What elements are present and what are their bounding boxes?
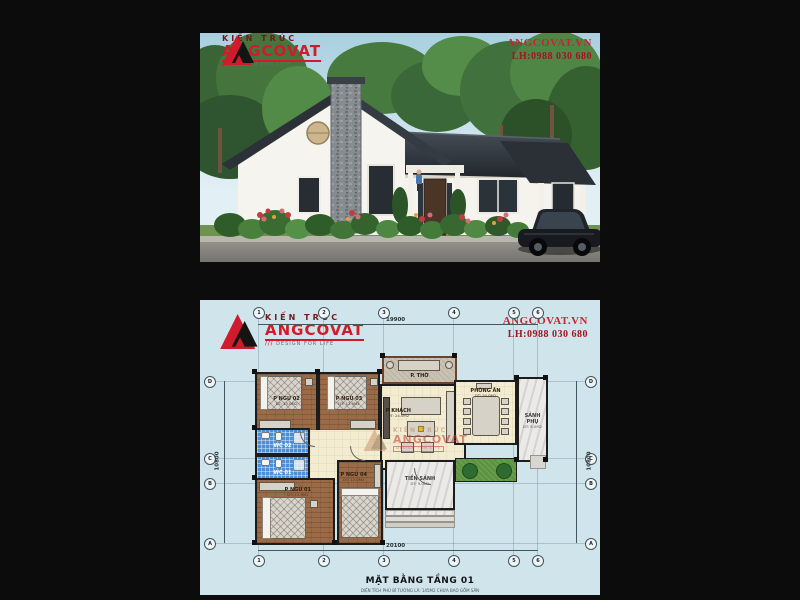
tree-icon [496,463,512,479]
room-area: DT: 12.5M2 [320,402,378,407]
chair-icon [463,408,471,415]
grid-bubble: A [204,538,216,550]
grid-bubble: 6 [532,307,544,319]
brand-triangle-icon [222,35,256,65]
chair-icon [501,428,509,435]
nightstand-icon [310,500,318,508]
wall-pier [543,375,548,380]
website-text: ANGCOVAT.VN [507,37,592,51]
wall-pier [514,457,519,462]
wall-pier [377,369,382,374]
wall-pier [543,457,548,462]
grid-bubble: 4 [448,307,460,319]
toilet-icon [275,432,282,441]
window [298,177,320,213]
brand-name: ANGCOVAT [265,323,364,338]
wall-pier [380,540,385,545]
contact-block: ANGCOVAT.VN LH:0988 030 680 [503,315,588,341]
sink-icon [261,432,270,439]
grid-bubble: 3 [378,555,390,567]
grid-bubble: D [585,376,597,388]
dim-line-bottom [258,550,538,551]
room-p-tho: P. THỜ [382,356,457,384]
room-area: DT: 13.5M2 [275,493,321,498]
contact-block: ANGCOVAT.VN LH:0988 030 680 [507,37,592,63]
plan-title: MẶT BẰNG TẦNG 01 [320,576,520,586]
wall-pier [252,369,257,374]
house-render-panel: KIẾN TRÚC ANGCOVAT /// DESIGN FOR LIFE A… [200,33,600,262]
watermark-tagline: DESIGN FOR LIFE [393,446,444,452]
grid-bubble: 5 [508,555,520,567]
dim-right: 10800 [587,451,593,470]
phone-text: LH:0988 030 680 [507,51,592,64]
grid-bubble: B [585,478,597,490]
dim-top: 19900 [386,317,405,323]
room-area: DT: 8.0M2 [519,425,546,430]
brand-logo: KIẾN TRÚC ANGCOVAT /// DESIGN FOR LIFE [220,314,364,349]
wall-pier [514,375,519,380]
room-area: DT: 20.0M2 [456,394,515,399]
brand-slashes: /// [265,341,273,347]
entry-step [385,522,455,528]
wall-pier [380,353,385,358]
room-area: DT: 12.0M2 [339,478,368,483]
grid-bubble: 1 [253,555,265,567]
sink-icon [261,459,270,466]
pillow-icon [341,488,379,496]
grid-bubble: 2 [318,307,330,319]
room-area: DT: 24.0M2 [382,414,415,419]
watermark-name: ANGCOVAT [393,434,468,445]
nightstand-icon [305,378,313,386]
grid-bubble: 5 [508,307,520,319]
room-sanh-phu: SẢNH PHỤDT: 8.0M2 [517,377,548,462]
tree-icon [462,463,478,479]
person [417,170,422,175]
room-p-ngu-03: P NGỦ 03DT: 12.5M2 [318,372,380,432]
dim-bottom: 20100 [386,543,405,549]
dim-line-top [258,324,538,325]
wall-pier [252,425,257,430]
nightstand-icon [370,378,378,386]
room-area: DT: 13.0M2 [257,402,316,407]
stone-chimney [331,83,361,233]
wall-pier [252,540,257,545]
wardrobe-icon [374,464,381,488]
brand-triangle-icon [220,314,260,349]
garden-patch [455,458,517,482]
chair-icon [463,418,471,425]
chair-icon [463,398,471,405]
grid-bubble: 4 [448,555,460,567]
dim-left: 10800 [215,451,221,470]
watermark-logo: KIẾN TRÚC ANGCOVAT DESIGN FOR LIFE [363,428,468,452]
room-label: WC 01 [257,470,308,476]
dim-line-right [576,381,577,543]
wall-pier [332,540,337,545]
grid-bubble: A [585,538,597,550]
chair-icon [501,408,509,415]
room-p-ngu-04: P NGỦ 04DT: 12.0M2 [337,460,383,545]
wall-pier [252,475,257,480]
door-canopy [406,165,464,173]
chair-icon [501,398,509,405]
brand-tagline: DESIGN FOR LIFE [276,341,334,347]
column-icon [445,361,453,369]
room-p-ngu-01: P NGỦ 01DT: 13.5M2 [255,478,335,545]
pillow-icon [262,497,271,539]
dim-line-left [224,381,225,543]
floor-plan-panel: 1 2 3 4 5 6 1 2 3 4 5 6 D C B A D C B A … [200,300,600,595]
brand-logo: KIẾN TRÚC ANGCOVAT /// DESIGN FOR LIFE [222,35,321,68]
room-label: P. THỜ [384,373,455,379]
plan-title-block: MẶT BẰNG TẦNG 01 DIỆN TÍCH PHỦ BÌ TƯỜNG … [320,576,520,593]
watermark-triangle-icon [363,429,389,451]
phone-text: LH:0988 030 680 [503,329,588,342]
wall-pier [315,369,320,374]
wall-pier [452,353,457,358]
room-p-ngu-02: P NGỦ 02DT: 13.0M2 [255,372,318,432]
dining-table-icon [472,396,500,436]
grid-bubble: 6 [532,555,544,567]
altar-cabinet-icon [398,360,440,371]
grid-bubble: D [204,376,216,388]
window [368,165,394,215]
room-label: WC 02 [257,443,308,449]
chair-icon [501,418,509,425]
grid-bubble: 2 [318,555,330,567]
column-icon [386,361,394,369]
grid-bubble: 1 [253,307,265,319]
plan-subtitle: DIỆN TÍCH PHỦ BÌ TƯỜNG LÀ: 145M2 CHƯA BA… [320,588,520,593]
room-area: DT: 9.0M2 [387,482,453,487]
toilet-icon [275,459,282,468]
grid-bubble: B [204,478,216,490]
